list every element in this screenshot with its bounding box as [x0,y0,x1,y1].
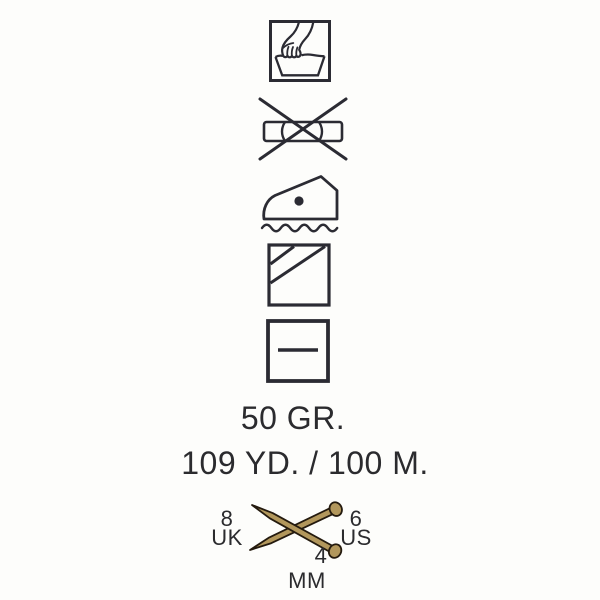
hand-wash-icon [269,20,331,82]
uk-label: UK [211,526,243,549]
yarn-yardage: 109 YD. / 100 M. [181,446,429,481]
mm-needle-size: 4 [315,544,328,567]
crossed-knitting-needles-icon [240,494,350,564]
dry-in-shade-icon [267,243,331,307]
do-not-wring-icon [257,96,349,162]
iron-low-heat-steam-icon [259,172,341,234]
dry-flat-icon [266,319,330,383]
mm-label: MM [288,569,326,592]
yarn-weight: 50 GR. [241,401,345,436]
us-label: US [340,526,372,549]
yarn-label: 50 GR. 109 YD. / 100 M. 8 UK 6 US 4 MM [0,0,600,600]
